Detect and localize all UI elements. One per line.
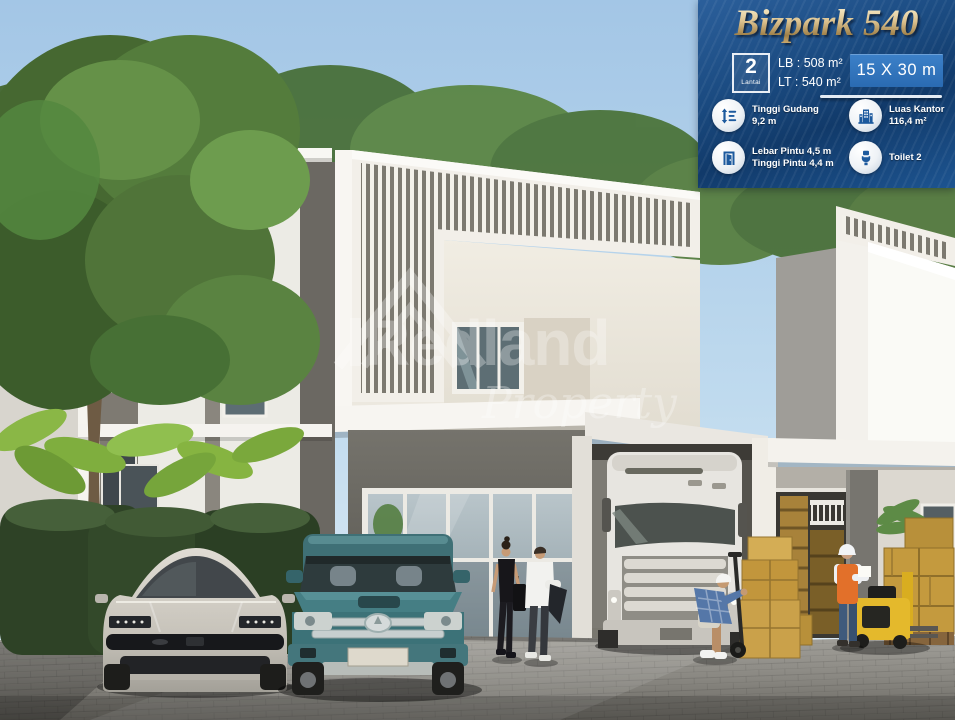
area-specs: LB : 508 m² LT : 540 m² (778, 54, 843, 93)
panel-title: Bizpark 540 (698, 2, 955, 45)
feature-list: Tinggi Gudang 9,2 m (712, 99, 946, 174)
feature-toilet: Toilet 2 (849, 141, 946, 174)
feature-text: Lebar Pintu 4,5 m Tinggi Pintu 4,4 m (752, 146, 834, 170)
floors-badge: 2 Lantai (732, 53, 770, 93)
toilet-icon (849, 141, 882, 174)
feature-text: Toilet 2 (889, 152, 922, 164)
building-area: LB : 508 m² (778, 54, 843, 73)
feature-office-area: Luas Kantor 116,4 m² (849, 99, 946, 132)
warehouse-height-icon (712, 99, 745, 132)
marketing-image: Redland Property Bizpark 540 2 Lantai LB… (0, 0, 955, 720)
floors-unit: Lantai (734, 79, 768, 86)
floors-number: 2 (734, 55, 768, 79)
feature-door-size: Lebar Pintu 4,5 m Tinggi Pintu 4,4 m (712, 141, 847, 174)
parcel-boxes (740, 537, 800, 658)
office-area-icon (849, 99, 882, 132)
feature-text: Tinggi Gudang 9,2 m (752, 104, 819, 128)
feature-warehouse-height: Tinggi Gudang 9,2 m (712, 99, 847, 132)
spec-underline (820, 95, 942, 98)
door-size-icon (712, 141, 745, 174)
info-panel: Bizpark 540 2 Lantai LB : 508 m² LT : 54… (698, 0, 955, 188)
dimensions-box: 15 X 30 m (850, 54, 944, 87)
feature-text: Luas Kantor 116,4 m² (889, 104, 944, 128)
spec-row: 2 Lantai LB : 508 m² LT : 540 m² 15 X 30… (732, 53, 944, 93)
land-area: LT : 540 m² (778, 73, 843, 92)
